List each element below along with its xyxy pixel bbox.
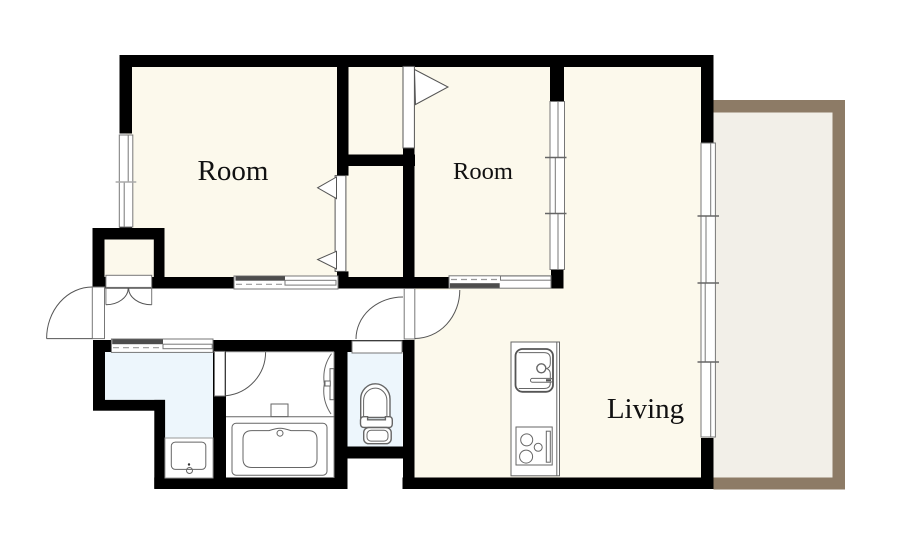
svg-text:Room: Room xyxy=(198,155,269,187)
svg-text:Living: Living xyxy=(607,393,684,425)
svg-text:Room: Room xyxy=(453,158,513,185)
